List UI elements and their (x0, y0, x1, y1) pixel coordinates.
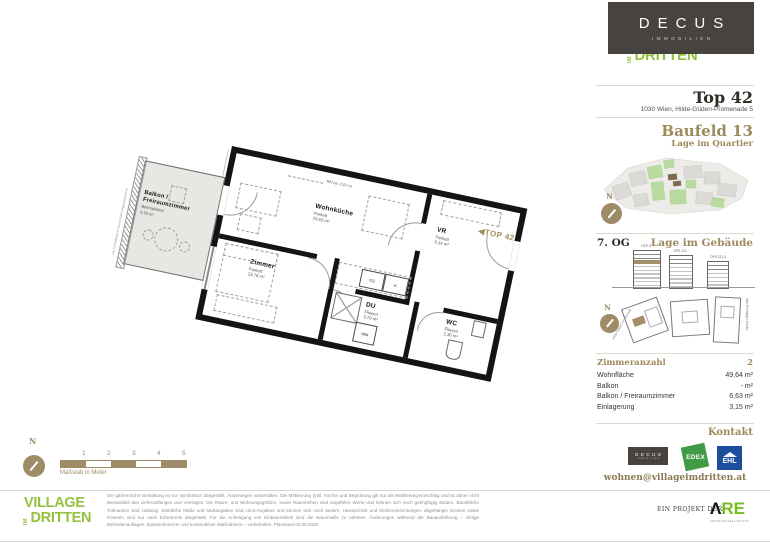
scale-tick: 3 (132, 450, 136, 457)
scale-bar-segments (60, 460, 187, 468)
row-value: 6,63 m² (729, 393, 753, 400)
decus-logo-sub: IMMOBILIEN (648, 36, 713, 41)
scale-tick: 5 (182, 450, 186, 457)
scale-caption: Maßstab in Meter (60, 470, 107, 476)
chair-outline (237, 213, 262, 234)
gebaeude-title: Lage im Gebäude (597, 237, 753, 249)
dishwasher-label: GS (369, 277, 376, 283)
village-logo: VILLAGE IM DRITTEN (24, 496, 91, 525)
ehl-logo: EHL (717, 446, 742, 470)
toilet-outline (445, 339, 464, 361)
building-label: OPS 121-3 (707, 255, 729, 259)
street-label-right: Otto-Preminger-Straße (745, 298, 749, 330)
balcony-chair-outline (142, 228, 155, 241)
apartment-floor-plan: verschiebbare Verschattungselemente Balk… (195, 146, 527, 382)
page-bottom-line (0, 541, 770, 542)
building-elevation (633, 250, 661, 289)
row-label: Balkon / Freiraumzimmer (597, 393, 675, 400)
decus-logo-small: DECUS IMMOBILIEN (628, 447, 668, 465)
ground-line (612, 287, 755, 288)
door-arc (417, 308, 444, 335)
table-row: Balkon - m² (597, 383, 753, 390)
table-row: Wohnfläche 49,64 m² (597, 372, 753, 379)
room-label-balkon: Balkon / Freiraumzimmer Betonplatten 6,6… (140, 190, 212, 228)
unit-title: Top 42 (597, 88, 753, 107)
door-arc (303, 257, 335, 289)
building-label: HGP 5 (633, 244, 659, 248)
row-label: Einlagerung (597, 404, 634, 411)
row-value: 2 (747, 358, 753, 368)
row-value: - m² (741, 383, 753, 390)
washing-machine-label: WM (361, 331, 369, 337)
edex-logo: EDEX (681, 443, 709, 471)
table-row: Balkon / Freiraumzimmer 6,63 m² (597, 393, 753, 400)
scale-tick: 2 (107, 450, 111, 457)
highlighted-floor (634, 260, 660, 264)
quartier-north-label: N (606, 192, 613, 201)
washing-machine-box: WM (352, 322, 378, 346)
baufeld-title: Baufeld 13 (597, 122, 753, 140)
balcony-chair-outline (178, 240, 191, 253)
divider (596, 423, 754, 424)
building-label: OPS 123 (669, 249, 691, 253)
wall-segment (421, 194, 432, 224)
building-elevation (669, 255, 693, 289)
footer-divider (0, 490, 770, 491)
divider (596, 233, 754, 234)
disclaimer-text: Die gärtnerische Gestaltung ist nur symb… (107, 492, 479, 529)
highlighted-unit (632, 315, 646, 327)
village-line2: DRITTEN (31, 511, 92, 526)
page: verschiebbare Verschattungselemente Balk… (0, 0, 770, 545)
north-compass-icon (23, 455, 45, 477)
quartier-subtitle: Lage im Quartier (597, 139, 753, 149)
village-line1: VILLAGE (24, 496, 91, 511)
row-value: 49,64 m² (725, 372, 753, 379)
village-im: IM (628, 56, 634, 63)
floor-plate (670, 299, 710, 338)
room-height-note: RH ca. 2,57 m (326, 179, 352, 189)
quartier-map (600, 150, 752, 230)
plate-detail (720, 306, 735, 319)
fridge-label: K (394, 282, 398, 287)
row-value: 3,15 m² (729, 404, 753, 411)
ehl-logo-text: EHL (723, 458, 737, 465)
vr-wardrobe-outline (440, 200, 502, 227)
edex-logo-text: EDEX (686, 454, 705, 461)
floor-plate (621, 297, 669, 344)
row-label: Wohnfläche (597, 372, 634, 379)
are-logo-mark: Λ (710, 499, 721, 518)
balcony-table-outline (152, 225, 180, 253)
compass-needle (607, 208, 615, 217)
plate-detail (682, 310, 699, 323)
plate-detail (644, 306, 663, 328)
gebaeude-north-label: N (604, 303, 611, 312)
decus-small-name: DECUS (633, 452, 664, 457)
floor-plate (713, 296, 741, 343)
gebaeude-compass-icon (600, 314, 619, 333)
table-row: Zimmeranzahl 2 (597, 358, 753, 368)
room-label-du: DU Fliesen 3,79 m² (363, 301, 381, 322)
unit-address: 1030 Wien, Hilde-Güden-Promenade 5 (597, 106, 753, 113)
decus-logo: DECUS IMMOBILIEN (608, 2, 754, 54)
dimension-line (288, 175, 323, 183)
divider (596, 85, 754, 86)
scale-tick: 4 (157, 450, 161, 457)
village-im: IM (24, 518, 30, 525)
contact-email[interactable]: wohnen@villageimdritten.at (597, 473, 753, 483)
scale-bar: 1 2 3 4 5 Maßstab in Meter (60, 450, 190, 480)
row-label: Balkon (597, 383, 618, 390)
room-label-wohnkueche: Wohnküche Parkett 20,63 m² (312, 203, 354, 229)
shower-outline (330, 292, 362, 324)
kontakt-title: Kontakt (597, 427, 753, 438)
are-logo-text: RE (721, 499, 745, 518)
decus-logo-name: DECUS (631, 15, 732, 32)
building-elevation (707, 261, 729, 289)
table-row: Einlagerung 3,15 m² (597, 404, 753, 411)
divider (596, 117, 754, 118)
north-label: N (29, 436, 36, 446)
are-logo: ΛRE AUSTRIAN REAL ESTATE (710, 500, 749, 523)
scale-tick: 1 (82, 450, 86, 457)
divider (596, 353, 754, 354)
compass-needle (29, 461, 38, 471)
washbasin-outline (471, 320, 487, 338)
room-label-vr: VR Parkett 6,14 m² (434, 227, 452, 248)
quartier-compass-icon (601, 203, 622, 224)
are-logo-sub: AUSTRIAN REAL ESTATE (710, 520, 749, 523)
compass-needle (605, 319, 613, 328)
decus-small-sub: IMMOBILIEN (636, 458, 660, 460)
room-label-wc: WC Fliesen 2,30 m² (443, 318, 461, 339)
row-label: Zimmeranzahl (597, 358, 666, 368)
ehl-house-icon (723, 452, 737, 457)
